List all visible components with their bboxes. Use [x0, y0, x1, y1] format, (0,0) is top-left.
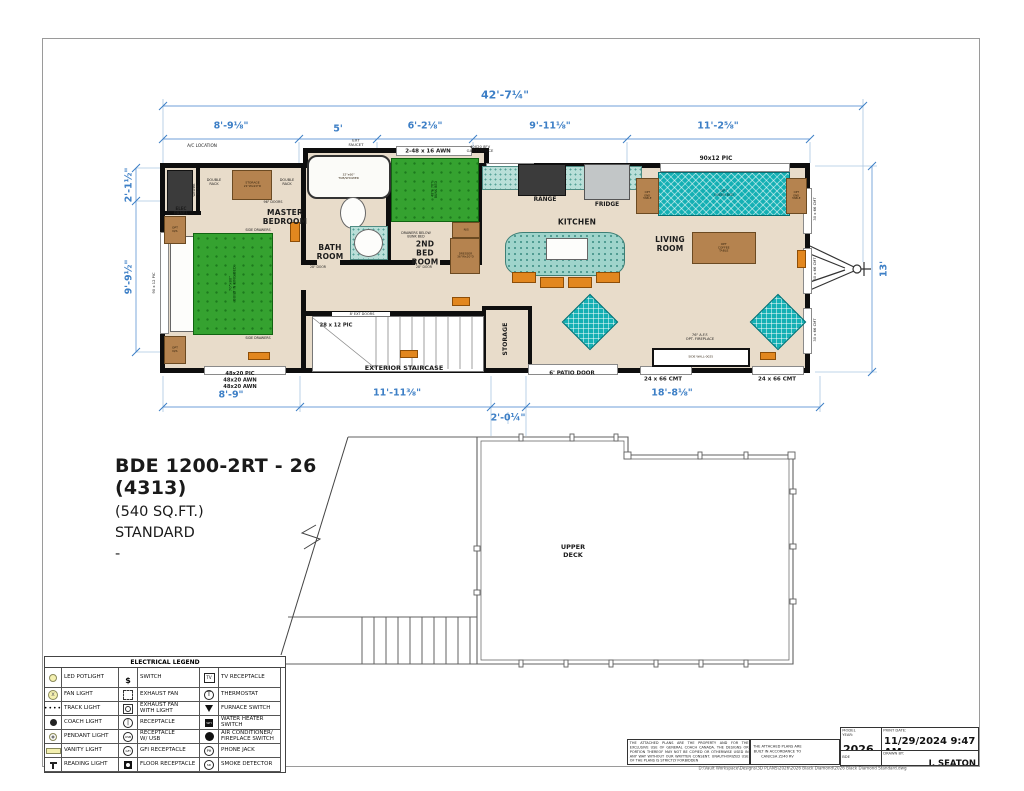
- print-date-label: PRINT DATE:: [882, 728, 942, 733]
- page-subtitle: (540 SQ.FT.) STANDARD -: [115, 502, 375, 565]
- thermostat-icon: [200, 688, 219, 702]
- drawn-by-value: J. SEATON: [882, 759, 978, 765]
- plan-label: SIDE DRAWERS: [245, 336, 270, 340]
- plan-label: 24 x 66 CMT: [644, 376, 682, 383]
- project-title-block: BDE 1200-2RT - 26 (4313) (540 SQ.FT.) ST…: [115, 455, 375, 565]
- deck-outline: [477, 437, 793, 664]
- furniture-gray: [584, 164, 630, 200]
- plan-label: 90x12 PIC: [700, 154, 733, 161]
- hitch: [810, 246, 871, 290]
- furniture-brown: OPT N/S: [164, 216, 186, 244]
- furniture-brown: OPT COFFEE TABLE: [692, 232, 756, 264]
- plan-label: 28" DOOR: [416, 265, 432, 269]
- plan-label: 2-48 x 16 AWN: [405, 148, 451, 155]
- legend-label: WATER HEATER SWITCH: [219, 716, 281, 730]
- ac-fireplace-switch-icon: [200, 730, 219, 744]
- plan-label: 90 x 12 PIC: [152, 272, 156, 293]
- electrical-legend: ELECTRICAL LEGEND LED POTLIGHTSWITCHTV R…: [44, 656, 286, 773]
- plan-label: BATH ROOM: [317, 243, 344, 261]
- dimension-seg-master: 8'-9⅛": [214, 121, 249, 132]
- legend-label: LED POTLIGHT: [62, 668, 119, 688]
- legend-title: ELECTRICAL LEGEND: [45, 657, 285, 668]
- receptacle-icon: [119, 716, 138, 730]
- disclaimer-box: THE ATTACHED PLANS ARE THE PROPERTY AND …: [627, 739, 750, 765]
- plan-label: DRAWERS BELOW BUNK BED: [401, 231, 430, 239]
- furniture-brown: OPT END TABLE: [786, 178, 807, 214]
- phone-jack-icon: [200, 744, 219, 758]
- legend-label: THERMOSTAT: [219, 688, 281, 702]
- plan-label: 30 x 66 CMT: [813, 197, 817, 220]
- furniture-orange: [452, 297, 470, 306]
- furniture-wbox: SIDE WALL-0025: [652, 348, 750, 367]
- plan-label: 8' EXT DOORS: [350, 312, 375, 316]
- legend-label: VANITY LIGHT: [62, 744, 119, 758]
- furniture-orange: [797, 250, 806, 268]
- legend-label: FAN LIGHT: [62, 688, 119, 702]
- plan-label: WASHER DRYER: [193, 184, 200, 197]
- window-right-3: [803, 308, 812, 354]
- furniture-dark: [518, 164, 566, 196]
- legend-label: FLOOR RECEPTACLE: [138, 758, 200, 772]
- plan-label: RANGE: [534, 195, 557, 202]
- plan-label: 28" DOOR: [310, 265, 326, 269]
- plan-label: MASTER BEDROOM: [263, 208, 307, 226]
- exhaust-fan-light-icon: [119, 702, 138, 716]
- dimension-bot-living: 18'-8⅛": [651, 388, 692, 399]
- legend-label: TV RECEPTACLE: [219, 668, 281, 688]
- legend-label: READING LIGHT: [62, 758, 119, 772]
- accordance-box: THE ATTACHED PLANS ARE BUILT IN ACCORDAN…: [750, 739, 840, 765]
- file-path-text: D:\Vault Workspace\Designs\3D PLANS\2026…: [682, 766, 923, 771]
- plan-label: A/C LOCATION: [187, 144, 217, 149]
- legend-label: TRACK LIGHT: [62, 702, 119, 716]
- plan-label: EXTERIOR STAIRCASE: [365, 364, 444, 372]
- dimension-bot-entry: 2'-0¼": [491, 413, 526, 424]
- furniture-green: 48"x 76" BUNK BED: [391, 158, 479, 222]
- furniture-orange: [568, 277, 592, 288]
- plan-label: FRIDGE: [595, 200, 619, 207]
- furniture-brown: OPT END TABLE: [636, 178, 659, 214]
- reading-light-icon: [45, 758, 62, 772]
- furniture-tealx: OPT QUEEN BED: [658, 172, 790, 216]
- plan-label: UPPER DECK: [561, 543, 585, 559]
- dimension-left-closet: 2'-1½": [124, 168, 135, 203]
- disclaimer-text: THE ATTACHED PLANS ARE THE PROPERTY AND …: [628, 740, 750, 764]
- model-year-label: MODEL YEAR:: [841, 728, 866, 737]
- legend-label: EXHAUST FAN: [138, 688, 200, 702]
- led-potlight-icon: [45, 668, 62, 688]
- receptacle-usb-icon: [119, 730, 138, 744]
- pendant-light-icon: [45, 730, 62, 744]
- plan-label: DOUBLE RACK: [207, 178, 221, 186]
- plan-label: 30 x 66 CMT: [813, 257, 817, 280]
- plan-label: DOUBLE RACK: [280, 178, 294, 186]
- furniture-white: [546, 238, 588, 260]
- drawing-sheet: 70"x80" BUILT IN KING BEDSTORAGE 21"Wx20…: [0, 0, 1024, 791]
- plan-label: 24 x 66 CMT: [758, 376, 796, 383]
- model-year-value: 2026: [841, 743, 881, 750]
- wall-storage-right: [528, 306, 532, 372]
- switch-icon: [119, 668, 138, 688]
- plan-label: 30 x 66 CMT: [813, 318, 817, 341]
- page-title: BDE 1200-2RT - 26 (4313): [115, 455, 375, 499]
- plan-label: EXT FAUCET: [349, 138, 364, 147]
- gfi-receptacle-icon: [119, 744, 138, 758]
- wall-hall-b: [340, 260, 415, 265]
- furniture-brown: STORAGE 21"Wx20"D: [232, 170, 272, 200]
- plan-label: 76" A.F.F. OPT. FIREPLACE: [686, 333, 714, 341]
- plan-label: LIVING ROOM: [655, 235, 685, 253]
- furniture-orange: [596, 272, 620, 283]
- legend-label: GFI RECEPTACLE: [138, 744, 200, 758]
- dimension-seg-2ndbed: 6'-2⅛": [408, 121, 443, 132]
- wall-master-lower: [301, 290, 306, 370]
- fan-light-icon: [45, 688, 62, 702]
- furniture-brown: OPT N/S: [164, 336, 186, 364]
- plan-label: 28 x 12 PIC: [320, 322, 353, 328]
- smoke-detector-icon: [200, 758, 219, 772]
- plan-label: 96" DOORS: [264, 200, 283, 204]
- vanity-light-icon: [45, 744, 62, 758]
- window-living-bottom-2: [752, 366, 804, 375]
- legend-label: PENDANT LIGHT: [62, 730, 119, 744]
- exhaust-fan-icon: [119, 688, 138, 702]
- plan-label: 40X20 8FV GAS FURNACE: [467, 145, 494, 154]
- legend-label: RECEPTACLE W/ USB: [138, 730, 200, 744]
- furniture-orange: [248, 352, 270, 360]
- plan-label: 6' PATIO DOOR: [549, 370, 595, 377]
- legend-label: EXHAUST FAN WITH LIGHT: [138, 702, 200, 716]
- wall-storage-top: [482, 306, 532, 310]
- legend-label: AIR CONDITIONER/ FIREPLACE SWITCH: [219, 730, 281, 744]
- furniture-orange: [400, 350, 418, 358]
- furniture-whiter: [340, 197, 366, 229]
- plan-label: KITCHEN: [558, 218, 596, 227]
- dimension-seg-kitchen: 9'-11⅛": [529, 121, 570, 132]
- legend-label: RECEPTACLE: [138, 716, 200, 730]
- furniture-green: 70"x80" BUILT IN KING BED: [193, 233, 273, 335]
- legend-label: COACH LIGHT: [62, 716, 119, 730]
- plan-label: ELEC PANEL: [174, 206, 188, 216]
- furniture-brown: N/S: [452, 222, 480, 238]
- furniture-orange: [540, 277, 564, 288]
- track-light-icon: [45, 702, 62, 716]
- legend-label: FURNACE SWITCH: [219, 702, 281, 716]
- furniture-whiter: [354, 229, 383, 257]
- window-master-left: [160, 232, 169, 334]
- furniture-tub: 32"x60" TUB/SHOWER: [307, 155, 391, 199]
- dimension-seg-living: 11'-2⅝": [697, 121, 738, 132]
- floor-receptacle-icon: [119, 758, 138, 772]
- coach-light-icon: [45, 716, 62, 730]
- window-living-bottom-1: [640, 366, 692, 375]
- water-heater-switch-icon: [200, 716, 219, 730]
- furniture-orange: [760, 352, 776, 360]
- tv-receptacle-icon: [200, 668, 219, 688]
- legend-label: SWITCH: [138, 668, 200, 688]
- legend-label: PHONE JACK: [219, 744, 281, 758]
- model-code: BDE: [841, 751, 866, 759]
- drawn-by-label: DRAWN BY:: [882, 751, 942, 756]
- dimension-bot-stairs: 11'-11⅜": [373, 388, 421, 399]
- plan-label: 48x20 PIC 48x20 AWN 48x20 AWN: [223, 370, 257, 389]
- dimension-left-master: 9'-9½": [124, 260, 135, 295]
- legend-label: SMOKE DETECTOR: [219, 758, 281, 772]
- dimension-seg-bath: 5': [333, 124, 343, 135]
- dimension-bot-master: 8'-9": [218, 390, 243, 401]
- window-living-top: [660, 163, 790, 172]
- plan-label: SIDE DRAWERS: [245, 228, 270, 232]
- title-block-grid: MODEL YEAR: 2026 PRINT DATE: 11/29/2024 …: [840, 727, 979, 766]
- furniture-orange: [512, 272, 536, 283]
- plan-label: STORAGE: [501, 323, 508, 356]
- furniture-brown: DRESSER 36"Wx20"D: [450, 238, 480, 274]
- furnace-switch-icon: [200, 702, 219, 716]
- furniture-white: [170, 236, 194, 332]
- dimension-overall-width: 42'-7¼": [481, 89, 529, 102]
- accordance-text: THE ATTACHED PLANS ARE BUILT IN ACCORDAN…: [751, 745, 804, 759]
- print-date-value: 11/29/2024 9:47 AM: [882, 736, 978, 750]
- plan-label: 2ND BED ROOM: [412, 240, 439, 267]
- legend-rows: LED POTLIGHTSWITCHTV RECEPTACLEFAN LIGHT…: [45, 668, 285, 772]
- dimension-right-height: 13': [879, 261, 890, 277]
